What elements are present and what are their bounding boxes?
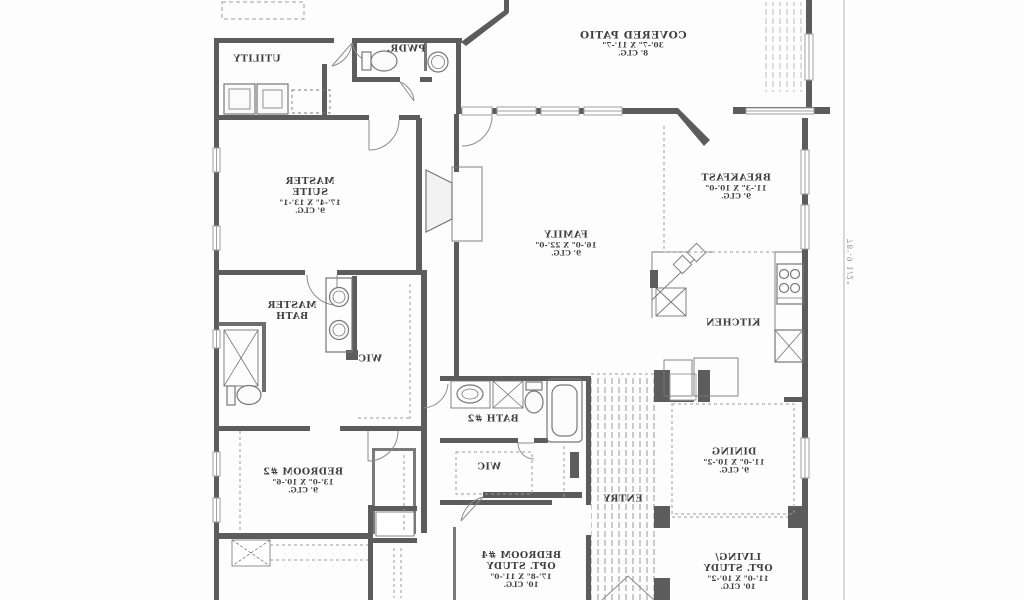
- double-vanity-icon: [326, 278, 352, 352]
- room-label-bedroom2: BEDROOM #2 13'-0" X 10'-6" 9' CLG.: [263, 467, 343, 494]
- closet-door: [376, 512, 414, 536]
- room-name: WIC: [358, 355, 382, 366]
- room-name: BATH: [267, 312, 316, 323]
- room-ceiling: 9' CLG.: [703, 466, 764, 474]
- room-ceiling: 10' CLG.: [703, 583, 772, 591]
- room-ceiling: 10' CLG.: [481, 581, 561, 589]
- floor-plan-drawing: [0, 0, 1024, 600]
- room-ceiling: 9' CLG.: [263, 486, 343, 494]
- room-label-entry: ENTRY: [603, 495, 642, 506]
- room-name: PWDR.: [386, 45, 425, 56]
- floor-plan-page: COVERED PATIO 30'-7" X 11'-7" 8' CLG. UT…: [0, 0, 1024, 600]
- room-label-covered-patio: COVERED PATIO 30'-7" X 11'-7" 8' CLG.: [579, 30, 686, 59]
- kitchen-corner-counter: [650, 243, 712, 318]
- room-label-family: FAMILY 16'-0" X 22'-0" 9' CLG.: [535, 230, 596, 257]
- stove-icon: [777, 264, 803, 304]
- entry-floor-hatch: [591, 376, 657, 600]
- room-name: WIC: [477, 463, 501, 474]
- patio-floor-hatch: [762, 2, 802, 92]
- room-label-bedroom4: BEDROOM #4 OPT. STUDY 17'-8" X 11'-0" 10…: [481, 551, 561, 589]
- room-label-wic-hall: WIC: [477, 463, 501, 474]
- room-ceiling: 9' CLG.: [279, 207, 340, 215]
- attic-access: [232, 540, 270, 566]
- shower-icon: [224, 330, 258, 386]
- lot-depth-dimension: 78'-9 1/2": [846, 239, 855, 286]
- room-label-kitchen: KITCHEN: [705, 319, 760, 330]
- room-label-living: LIVING/ OPT. STUDY 11'-0" X 10'-2" 10' C…: [703, 553, 772, 591]
- toilet-icon: [525, 382, 543, 413]
- room-name: BATH #2: [467, 415, 519, 426]
- sink-icon: [451, 381, 490, 408]
- room-label-master-suite: MASTER SUITE 17'-4" X 13'-1" 9' CLG.: [279, 177, 340, 215]
- fireplace-icon: [426, 167, 482, 241]
- washer-icon: [224, 84, 255, 114]
- room-label-dining: DINING 11'-0" X 10'-2" 9' CLG.: [703, 447, 764, 474]
- room-name: KITCHEN: [705, 319, 760, 330]
- room-ceiling: 9' CLG.: [535, 249, 596, 257]
- bathtub-icon: [547, 379, 582, 442]
- room-name: ENTRY: [603, 495, 642, 506]
- room-label-bath2: BATH #2: [467, 415, 519, 426]
- sink-icon: [428, 52, 448, 72]
- room-label-utility: UTILITY: [233, 55, 281, 66]
- toilet-icon: [227, 386, 261, 406]
- room-label-master-bath: MASTER BATH: [267, 301, 316, 323]
- room-name: UTILITY: [233, 55, 281, 66]
- room-label-breakfast: BREAKFAST 11'-3" X 10'-0" 9' CLG.: [701, 173, 771, 200]
- optional-area-dashed: [222, 2, 304, 19]
- room-ceiling: 8' CLG.: [579, 50, 686, 58]
- room-ceiling: 9' CLG.: [701, 192, 771, 200]
- refrigerator-icon: [775, 330, 803, 362]
- room-label-pwdr: PWDR.: [386, 45, 425, 56]
- room-label-wic-master: WIC: [358, 355, 382, 366]
- shower-icon: [493, 381, 523, 408]
- dryer-icon: [257, 84, 288, 114]
